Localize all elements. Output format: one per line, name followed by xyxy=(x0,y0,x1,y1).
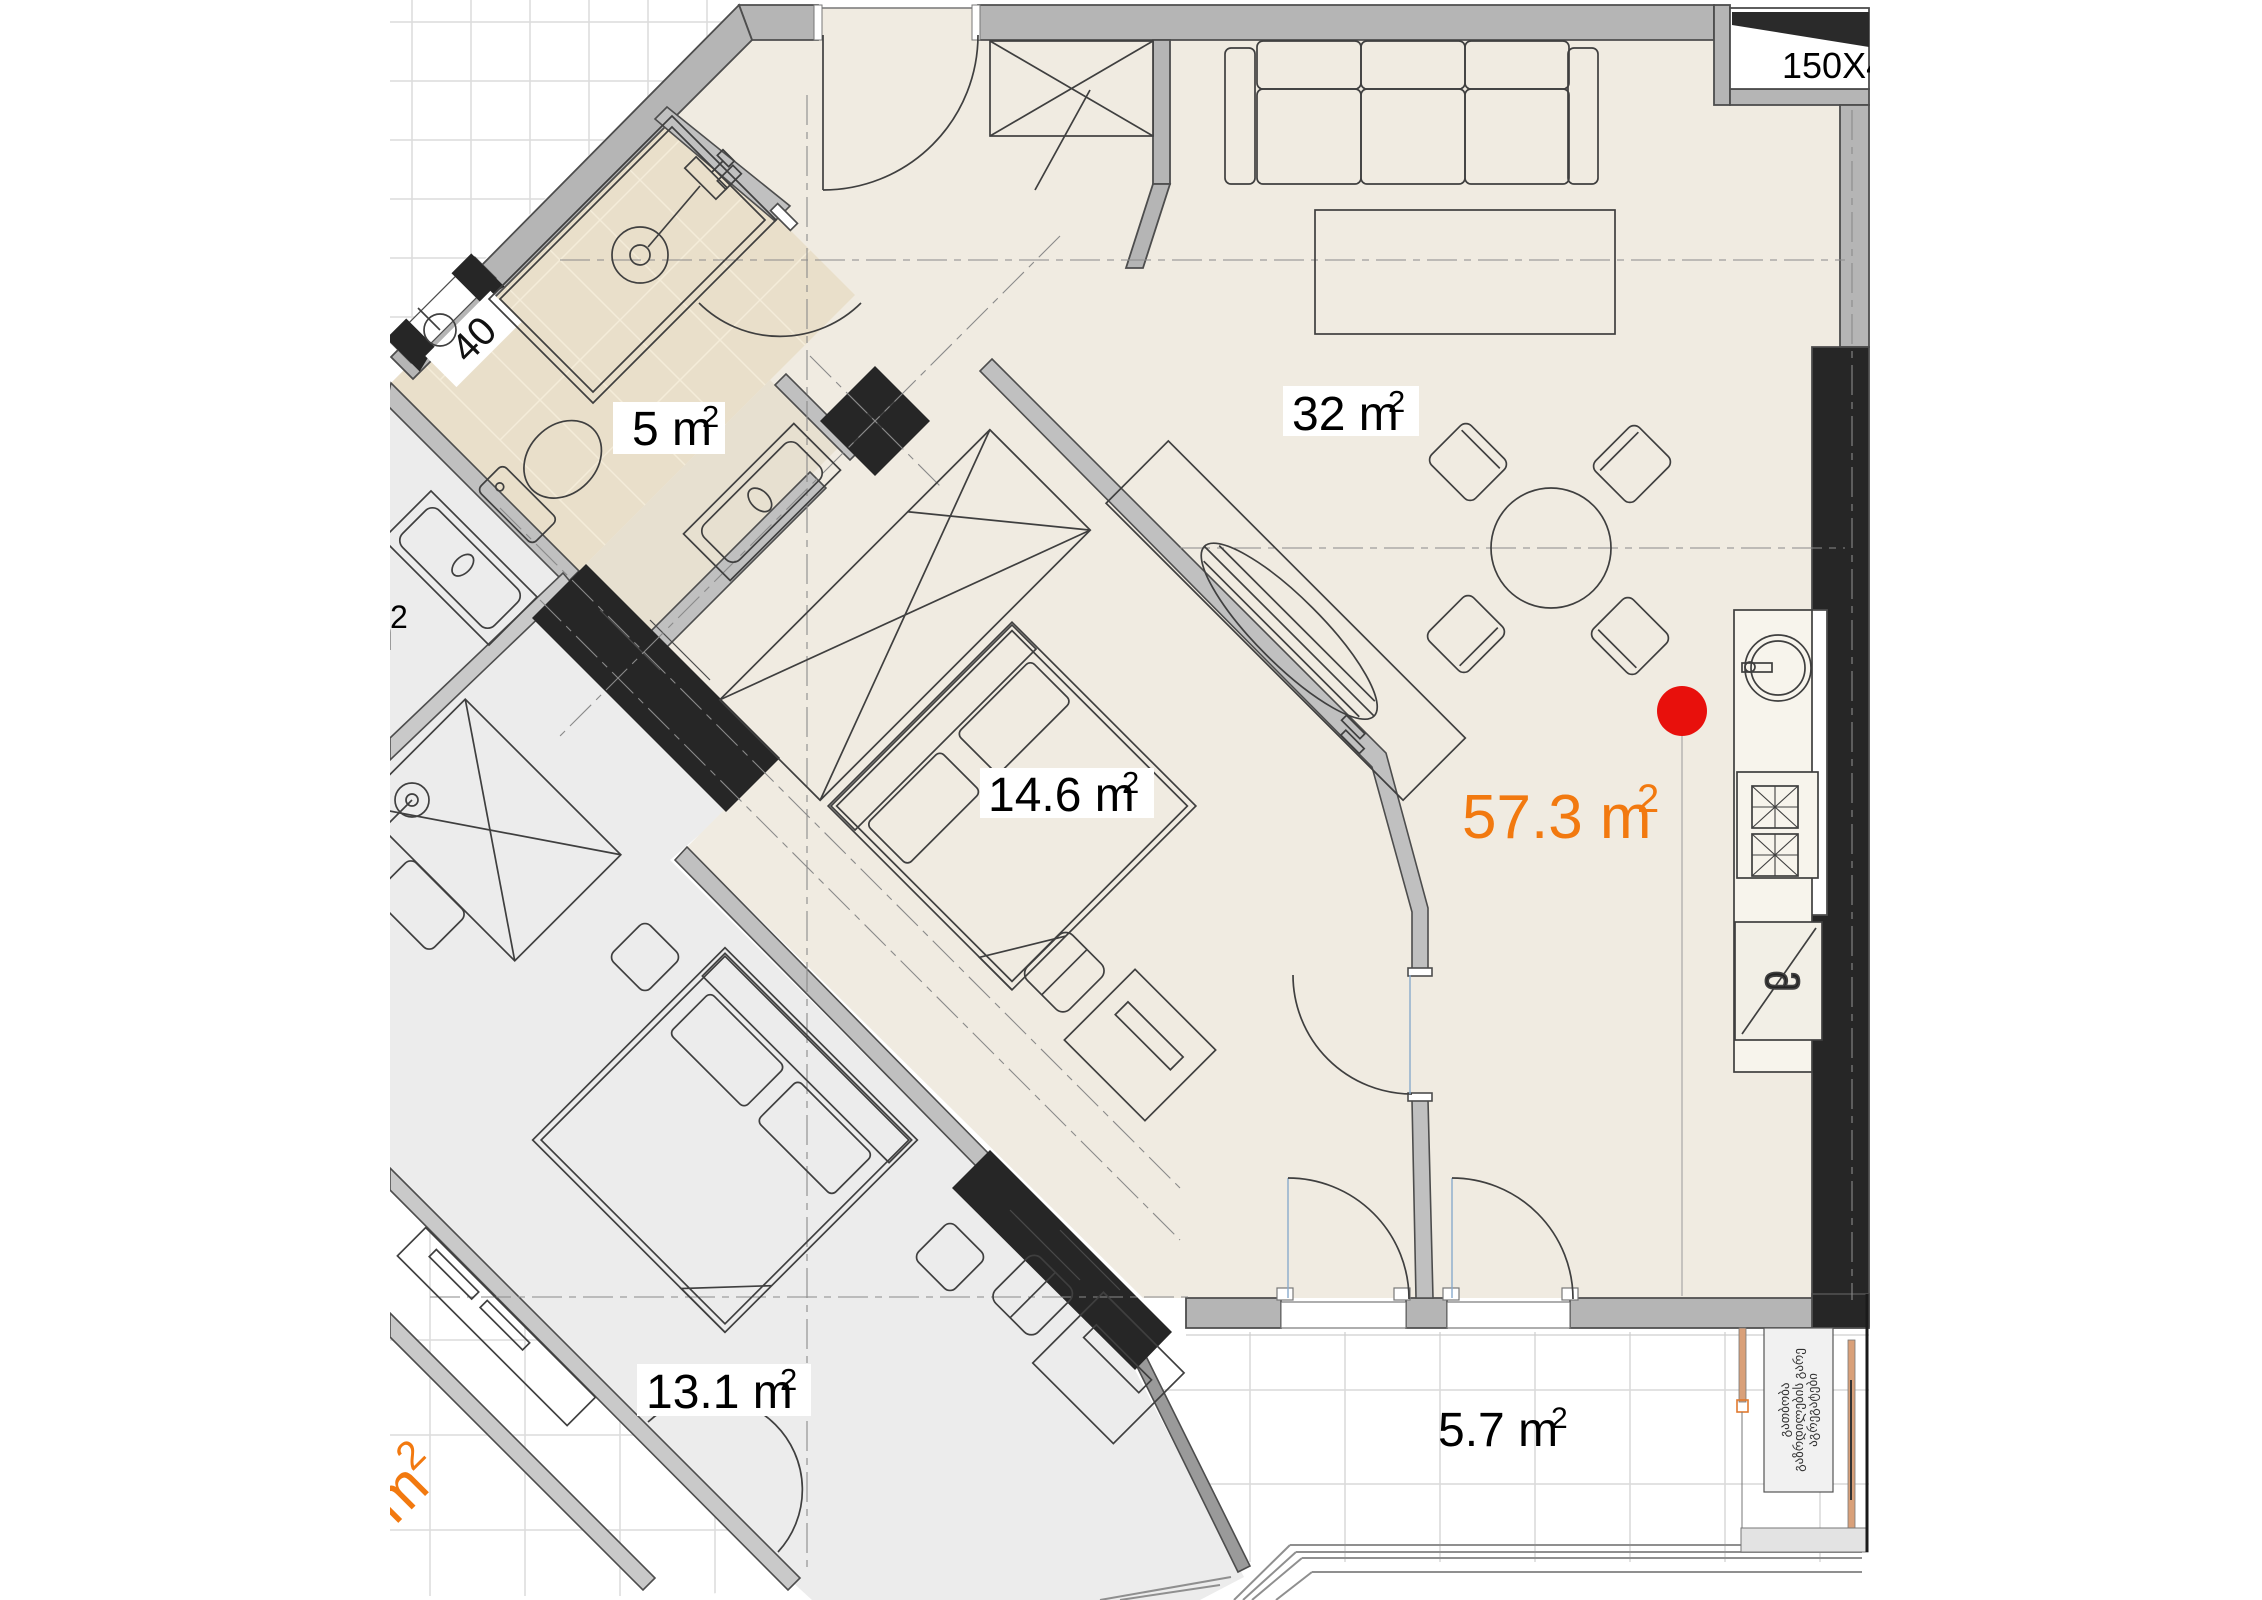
svg-text:2: 2 xyxy=(1388,384,1405,419)
svg-text:5 m: 5 m xyxy=(632,403,712,456)
svg-text:2: 2 xyxy=(390,599,408,635)
svg-text:13.1 m: 13.1 m xyxy=(646,1366,793,1419)
svg-text:2: 2 xyxy=(1551,1402,1568,1435)
svg-text:2: 2 xyxy=(780,1362,797,1397)
svg-text:2: 2 xyxy=(1122,765,1139,800)
svg-text:57.3 m: 57.3 m xyxy=(1462,783,1652,852)
svg-text:2: 2 xyxy=(702,399,719,434)
svg-text:5.7 m: 5.7 m xyxy=(1438,1404,1558,1457)
svg-text:აგრეგატები: აგრეგატები xyxy=(1805,1373,1821,1447)
svg-text:2: 2 xyxy=(1637,777,1659,821)
svg-text:32 m: 32 m xyxy=(1292,388,1399,441)
svg-text:14.6 m: 14.6 m xyxy=(988,769,1135,822)
svg-text:მ: მ xyxy=(1757,971,1801,992)
